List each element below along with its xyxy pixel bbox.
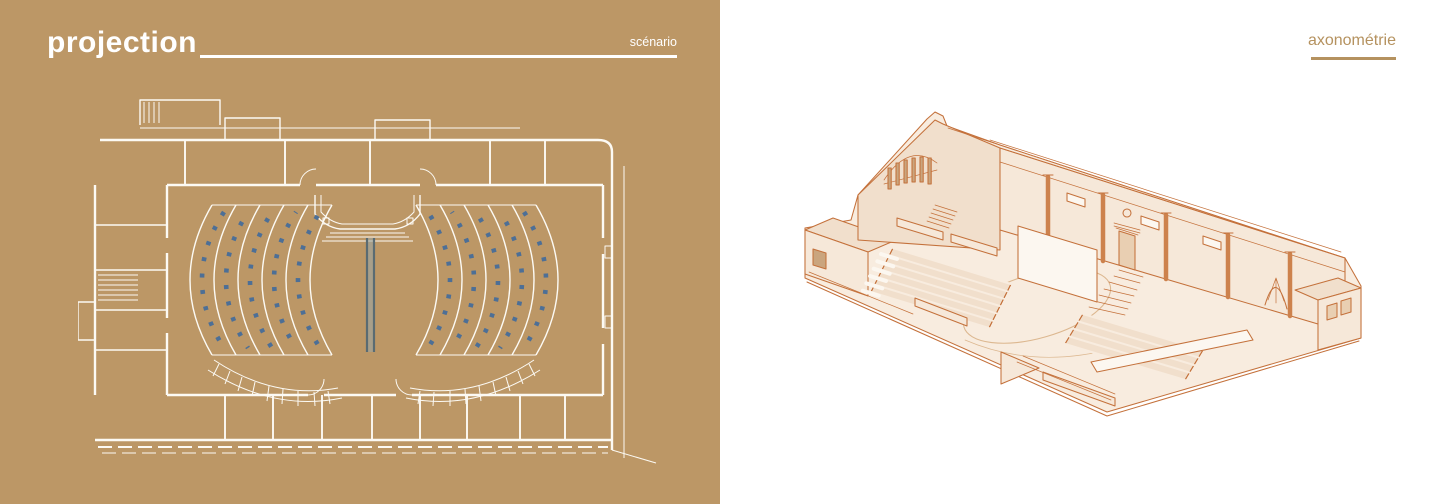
- right-panel: axonométrie: [720, 0, 1440, 504]
- theater-floor-plan-svg: [78, 88, 658, 468]
- axonometrie-label: axonométrie: [1308, 32, 1396, 50]
- axonometric-drawing: [785, 100, 1365, 430]
- plan-projection-screen: [366, 238, 375, 352]
- plan-seating-left: [190, 205, 342, 406]
- left-panel: projection scénario: [0, 0, 720, 504]
- plan-outer-walls: [78, 140, 624, 458]
- axonometrie-underline: [1311, 57, 1396, 60]
- plan-right-corridor: [603, 185, 612, 395]
- presentation-slide: projection scénario: [0, 0, 1440, 504]
- auditorium-axonometric-svg: [785, 100, 1365, 430]
- floor-plan-drawing: [78, 88, 658, 468]
- plan-stage: [315, 195, 420, 241]
- plan-bottom-rooms: [98, 379, 656, 463]
- plan-left-wing: [95, 185, 167, 395]
- plan-seating-right: [406, 205, 558, 406]
- plan-top-rooms: [140, 100, 603, 185]
- page-title: projection: [47, 26, 197, 60]
- scenario-label: scénario: [630, 35, 677, 49]
- title-rule-line: [200, 55, 677, 58]
